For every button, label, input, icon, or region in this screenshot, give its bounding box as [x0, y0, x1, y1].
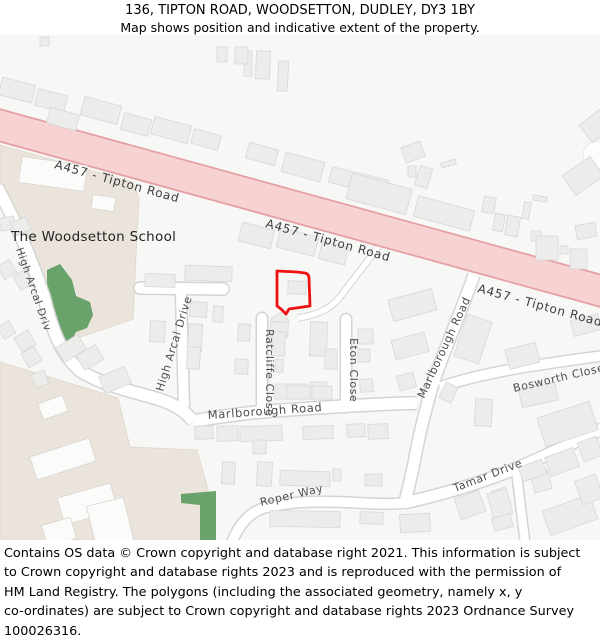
building	[312, 386, 332, 399]
building	[303, 425, 333, 439]
building	[575, 222, 597, 239]
building	[212, 306, 223, 323]
building	[482, 196, 497, 214]
building	[533, 195, 548, 202]
building	[522, 202, 532, 220]
footer-line: Contains OS data © Crown copyright and d…	[4, 544, 598, 563]
map-container: A457 - Tipton Road A457 - Tipton Road A4…	[0, 35, 600, 540]
building	[360, 512, 383, 525]
building	[347, 424, 365, 438]
building	[368, 424, 389, 440]
building	[401, 141, 425, 163]
building	[149, 321, 165, 343]
building	[365, 474, 382, 486]
building	[240, 425, 282, 441]
building	[280, 470, 330, 487]
building	[536, 236, 558, 260]
building	[195, 426, 213, 440]
building	[560, 246, 568, 254]
building	[256, 462, 272, 487]
building	[91, 194, 116, 211]
building	[562, 156, 600, 195]
building	[221, 462, 235, 485]
building	[414, 165, 433, 188]
building	[504, 215, 520, 237]
building	[400, 513, 431, 533]
building	[217, 47, 227, 62]
building	[391, 332, 429, 360]
building	[191, 129, 222, 151]
building	[80, 96, 122, 124]
building	[287, 386, 310, 399]
building	[270, 510, 340, 527]
building	[396, 372, 416, 391]
building	[0, 77, 36, 103]
page-title: 136, TIPTON ROAD, WOODSETTON, DUDLEY, DY…	[0, 0, 600, 18]
building	[245, 142, 278, 165]
building	[570, 249, 587, 269]
building	[120, 113, 151, 137]
page-subtitle: Map shows position and indicative extent…	[0, 18, 600, 35]
building	[441, 159, 457, 168]
building	[277, 61, 289, 91]
map: A457 - Tipton Road A457 - Tipton Road A4…	[0, 35, 600, 540]
building	[333, 469, 341, 481]
building	[185, 265, 232, 282]
road-high-arcal-stub-fill	[140, 288, 223, 289]
building	[388, 289, 437, 322]
building	[579, 109, 600, 142]
header: 136, TIPTON ROAD, WOODSETTON, DUDLEY, DY…	[0, 0, 600, 35]
footer-line: co-ordinates) are subject to Crown copyr…	[4, 602, 598, 621]
building	[186, 347, 200, 370]
building	[235, 47, 248, 64]
building	[217, 426, 239, 442]
building	[360, 379, 374, 393]
building	[474, 399, 492, 427]
building	[256, 51, 271, 79]
building	[0, 321, 16, 340]
building	[150, 116, 191, 143]
place-label-school: The Woodsetton School	[10, 229, 176, 245]
building	[325, 349, 337, 369]
building	[40, 37, 49, 46]
building	[253, 440, 266, 454]
road-label-eton: Eton Close	[347, 338, 360, 402]
building	[238, 324, 251, 342]
building	[493, 213, 506, 231]
building	[145, 273, 175, 287]
building	[288, 281, 306, 295]
footer-line: to Crown copyright and database rights 2…	[4, 563, 598, 582]
building	[408, 166, 416, 177]
building	[281, 152, 325, 182]
copyright-notice: Contains OS data © Crown copyright and d…	[0, 544, 598, 641]
footer-line: HM Land Registry. The polygons (includin…	[4, 583, 598, 602]
building	[235, 359, 249, 375]
